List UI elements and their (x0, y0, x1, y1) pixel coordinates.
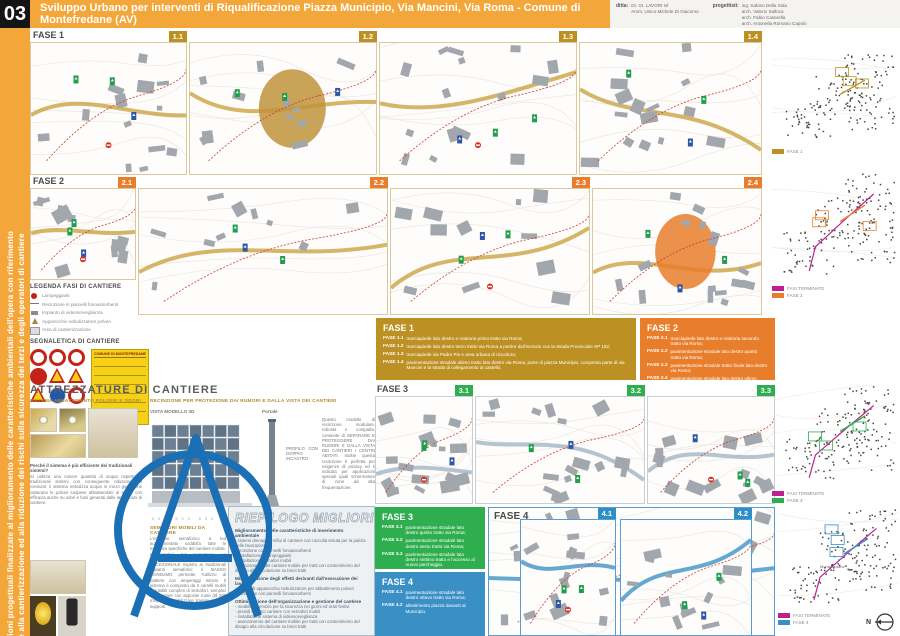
fase3-description-box: FASE 3 FASE 3.1 pavimentazione stradale … (375, 507, 485, 569)
fase4-item: FASE 4.2 allestimento piazza davanti al … (382, 603, 478, 614)
legend-item-icon (30, 310, 39, 316)
fase2-item: FASE 2.4 pavimentazione stradale lato de… (647, 376, 768, 380)
fase3-item: FASE 3.1 pavimentazione stradale lato de… (382, 525, 478, 536)
fase1-item-text: pavimentazione stradale ultimo tratto la… (407, 360, 629, 371)
fase2-item-code: FASE 2.4 (647, 376, 668, 380)
overview-map-fase1-legend: FASE 1 (772, 149, 803, 154)
overview-map-fase1 (772, 52, 896, 146)
fase3-item: FASE 3.2 pavimentazione stradale lato de… (382, 538, 478, 549)
legend-swatch (772, 498, 784, 503)
riepilogo-item: avanzamento del cantiere mobile per trat… (235, 619, 368, 629)
map-panel-3-2: 3.2 (475, 396, 645, 504)
legend-row: FASE 3 (772, 498, 824, 503)
traffic-light-red (70, 601, 74, 605)
legend-swatch (772, 149, 784, 154)
semafori-text: L'impianto semaforico a led autoalimenta… (150, 536, 226, 634)
place-label: Montefredane (820, 564, 845, 569)
legend-row: FASE 4 (778, 620, 830, 625)
legend-item-label: Area di cantierizzazione (42, 327, 91, 332)
profilo-annotation: PROFILO CON DOPPIO INCASTRO (286, 446, 318, 462)
progettisti-block: progettisti: ing. Sabino Della Salaarch.… (713, 3, 807, 25)
fase3-item-text: pavimentazione stradale lato destro quin… (406, 525, 478, 536)
fase2-item-code: FASE 2.1 (647, 336, 668, 347)
recinzione-subtitle: RECINZIONE PER PROTEZIONE DAI RUMORI E D… (150, 399, 375, 404)
legend-item-icon (30, 318, 39, 324)
panel-badge-1-1: 1.1 (169, 31, 187, 42)
panel-badge-1-3: 1.3 (559, 31, 577, 42)
legend-swatch (772, 491, 784, 496)
map-panel-3-1: 3.1 (375, 396, 473, 504)
fase1-item: FASE 1.4 pavimentazione stradale ultimo … (383, 360, 629, 371)
sidebar-line-2: anche alla cantierizzazione ed alla ridu… (16, 58, 27, 636)
progettista-line: arch. Fabio Casarella (742, 15, 807, 20)
fase3-item-code: FASE 3.2 (382, 538, 403, 549)
legend-item-label: Impianto di videosorveglianza (42, 310, 103, 315)
page-title: Sviluppo Urbano per interventi di Riqual… (30, 0, 610, 28)
legend-row: FASI TERMINATE (772, 491, 824, 496)
fase1-item-text: marciapiede via Padre Pio e area urbana … (407, 352, 517, 357)
fase1-item-code: FASE 1.3 (383, 352, 404, 357)
riepilogo-group-heading: Minimizzazione degli effetti derivanti d… (235, 576, 368, 586)
fase3-item-code: FASE 3.3 (382, 552, 403, 568)
legend-item-icon (30, 293, 39, 299)
overview-map-fase2 (772, 172, 896, 282)
legend-item: Impianto di videosorveglianza (30, 310, 172, 316)
legend-item: Apparecchio nebulizzatore polveri (30, 318, 172, 324)
riepilogo-title: RIEPILOGO MIGLIORIE PROPOSTE (235, 511, 368, 525)
ditta-line: Amm. Unico Michele Di Giacomo (631, 9, 698, 14)
ditta-label: ditta: (616, 3, 628, 25)
legend-item: Area di cantierizzazione (30, 327, 172, 333)
fase2-item-text: marciapiede lato destro e rotatoria seco… (671, 336, 768, 347)
panel-badge-1-4: 1.4 (744, 31, 762, 42)
panel-badge-3-2: 3.2 (627, 385, 645, 396)
polveri-text: Si utilizza una minore quantità di acqua… (30, 474, 142, 556)
vista-modello-label: VISTA MODELLO 3D (150, 409, 194, 414)
fase3-item-code: FASE 3.1 (382, 525, 403, 536)
legend-row: FASI TERMINATE (778, 613, 830, 618)
progettisti-lines: ing. Sabino Della Salaarch. Valerio Sall… (742, 3, 807, 25)
legend-item-label: Lampeggianti (42, 293, 70, 298)
ditta-block: ditta: DI. GI. LAVORI srlAmm. Unico Mich… (616, 3, 699, 25)
credits-block: ditta: DI. GI. LAVORI srlAmm. Unico Mich… (610, 0, 900, 28)
fase1-row-label: FASE 1 (33, 30, 64, 40)
fase2-item-text: pavimentazione stradale lato destro ulti… (671, 376, 768, 380)
legend-swatch (778, 620, 790, 625)
fase2-row-label: FASE 2 (33, 176, 64, 186)
portale-label: Portale (262, 409, 278, 414)
overview-map-fase2-legend: FASI TERMINATE FASE 2 (772, 286, 824, 298)
map-panel-2-3: 2.3 (390, 188, 590, 315)
poster-board: 03 Sviluppo Urbano per interventi di Riq… (0, 0, 900, 636)
overview-map-fase3 (772, 385, 896, 488)
fase1-item-code: FASE 1.4 (383, 360, 404, 371)
map-panel-2-1: 2.1 (30, 188, 136, 280)
fase3-row-label: FASE 3 (377, 384, 408, 394)
fase2-item-text: pavimentazione stradale lato destro quar… (671, 349, 768, 360)
fase2-description-box: FASE 2 FASE 2.1 marciapiede lato destro … (640, 318, 775, 380)
legend-swatch (778, 613, 790, 618)
panel-badge-2-3: 2.3 (572, 177, 590, 188)
site-equipment-photo (30, 560, 86, 594)
sidebar-vertical-text: Soluzioni progettuali finalizzate al mig… (5, 58, 27, 636)
legend-item: Lampeggianti (30, 293, 172, 299)
legend-label: FASE 3 (787, 498, 803, 503)
map-panel-1-3: 1.3 (379, 42, 577, 175)
overview-map-fase4: Montefredane (778, 508, 898, 610)
semafori-subtitle: SEMAFORI MOBILI DA CANTIERE (150, 526, 226, 536)
fase2-item: FASE 2.2 pavimentazione stradale lato de… (647, 349, 768, 360)
fase2-box-title: FASE 2 (647, 323, 768, 333)
no-entry-sign-icon (30, 349, 47, 366)
sheet-number: 03 (0, 0, 30, 28)
north-arrow-icon (873, 612, 895, 632)
map-panel-3-3: 3.3 (647, 396, 775, 504)
map-panel-2-4: 2.4 (592, 188, 762, 315)
legend-title: LEGENDA FASI DI CANTIERE (30, 284, 172, 290)
riepilogo-item: avanzamento del cantiere mobile per trat… (235, 563, 368, 573)
fase4-item-code: FASE 4.1 (382, 590, 403, 601)
fase1-description-box: FASE 1 FASE 1.1 marciapiede lato destro … (376, 318, 636, 380)
progettisti-label: progettisti: (713, 3, 739, 25)
map-panel-2-2: 2.2 (138, 188, 388, 315)
map-panel-1-1: 1.1 (30, 42, 187, 175)
legend-label: FASI TERMINATE (787, 491, 824, 496)
segnaletica-title: SEGNALETICA DI CANTIERE (30, 339, 172, 345)
fase1-item: FASE 1.1 marciapiede lato destro e rotat… (383, 336, 629, 341)
generic-warning-sign-icon (68, 368, 84, 383)
fase4-item-code: FASE 4.2 (382, 603, 403, 614)
legend-items: Lampeggianti Recinzione in pannelli fono… (30, 293, 172, 333)
legend-label: FASE 4 (793, 620, 809, 625)
left-sidebar: Soluzioni progettuali finalizzate al mig… (0, 28, 30, 636)
fase1-item: FASE 1.2 marciapiede lato destro terzo t… (383, 344, 629, 349)
fase3-item-text: pavimentazione stradale lato destro sest… (406, 538, 478, 549)
attrezzature-title: ATTREZZATURE DI CANTIERE (30, 384, 219, 396)
legend-item-label: Recinzione in pannelli fonoassorbenti (42, 302, 118, 307)
map-panel-4-1: 4.1 (520, 519, 616, 636)
fase2-item-text: pavimentazione stradale tratto finale la… (671, 363, 768, 374)
fase2-item-code: FASE 2.2 (647, 349, 668, 360)
legend-swatch (772, 286, 784, 291)
panel-badge-2-2: 2.2 (370, 177, 388, 188)
fase1-item: FASE 1.3 marciapiede via Padre Pio e are… (383, 352, 629, 357)
panel-badge-4-1: 4.1 (598, 508, 616, 519)
polveri-question: Perché il sistema è più efficiente dei t… (30, 463, 142, 473)
overview-map-fase4-legend: FASI TERMINATE FASE 4 (778, 613, 830, 625)
fog-cannon-photo-4 (88, 408, 138, 458)
legend-label: FASI TERMINATE (793, 613, 830, 618)
panel-badge-3-1: 3.1 (455, 385, 473, 396)
no-parking-sign-icon (68, 349, 85, 366)
traffic-light-green (70, 615, 74, 619)
legend-row: FASE 1 (772, 149, 803, 154)
fase2-item: FASE 2.1 marciapiede lato destro e rotat… (647, 336, 768, 347)
sidebar-line-1: Soluzioni progettuali finalizzate al mig… (5, 58, 16, 636)
overview-map-fase3-legend: FASI TERMINATE FASE 3 (772, 491, 824, 503)
map-panel-1-2: 1.2 (189, 42, 377, 175)
legend-swatch (772, 293, 784, 298)
panel-badge-4-2: 4.2 (734, 508, 752, 519)
fog-cannon-photo-3 (30, 434, 86, 458)
fase2-item: FASE 2.3 pavimentazione stradale tratto … (647, 363, 768, 374)
riepilogo-group-heading: Miglioramento delle caratteristiche di i… (235, 528, 368, 538)
fase4-item: FASE 4.1 pavimentazione stradale lato de… (382, 590, 478, 601)
progettista-line: arch. Valerio Salloca (742, 9, 807, 14)
fase3-item-text: pavimentazione stradale lato destro sett… (406, 552, 478, 568)
barrier-3d-render (148, 417, 252, 515)
fase4-description-box: FASE 4 FASE 4.1 pavimentazione stradale … (375, 572, 485, 636)
riepilogo-item: recinzione con pannelli fonoassorbenti (235, 591, 368, 596)
ditta-lines: DI. GI. LAVORI srlAmm. Unico Michele Di … (631, 3, 698, 25)
fase1-item-text: marciapiede lato destro e rotatoria prim… (407, 336, 523, 341)
legend-row: FASE 2 (772, 293, 824, 298)
legend-item-label: Apparecchio nebulizzatore polveri (42, 319, 111, 324)
map-panel-1-4: 1.4 (579, 42, 762, 175)
board-line (94, 358, 146, 367)
ditta-line: DI. GI. LAVORI srl (631, 3, 698, 8)
fog-cannon-photo-2 (59, 408, 86, 432)
fase4-item-text: pavimentazione stradale lato destro otta… (406, 590, 478, 601)
north-arrow: N (866, 612, 895, 632)
fase1-item-text: marciapiede lato destro terzo tratto via… (407, 344, 611, 349)
board-line (94, 367, 146, 376)
north-label: N (866, 619, 871, 626)
legend-item: Recinzione in pannelli fonoassorbenti (30, 301, 172, 307)
speed-limit-sign-icon (49, 349, 66, 366)
roadworks-warning-sign-icon (49, 368, 65, 383)
panel-badge-2-4: 2.4 (744, 177, 762, 188)
map-panel-4-2: 4.2 (620, 519, 752, 636)
legend-label: FASE 2 (787, 293, 803, 298)
progettista-line: ing. Sabino Della Sala (742, 3, 807, 8)
riepilogo-item: sistemi drenaggio reflui di cantiere con… (235, 538, 368, 548)
fog-cannon-photo (30, 408, 57, 432)
barrier-dimensions: 500 500 500 (152, 517, 217, 521)
legend-row: FASI TERMINATE (772, 286, 824, 291)
legend-label: FASI TERMINATE (787, 286, 824, 291)
fase1-item-code: FASE 1.1 (383, 336, 404, 341)
fase1-item-code: FASE 1.2 (383, 344, 404, 349)
fase4-box-title: FASE 4 (382, 577, 478, 587)
legend-item-icon (30, 301, 39, 307)
panel-badge-1-2: 1.2 (359, 31, 377, 42)
fase3-item: FASE 3.3 pavimentazione stradale lato de… (382, 552, 478, 568)
fase3-box-title: FASE 3 (382, 512, 478, 522)
mobile-traffic-light-photo (58, 596, 86, 636)
flashing-lamp-photo (30, 596, 56, 636)
barrier-post-render (260, 417, 284, 515)
panel-badge-2-1: 2.1 (118, 177, 136, 188)
riepilogo-groups: Miglioramento delle caratteristiche di i… (235, 528, 368, 629)
no-transit-sign-icon (30, 368, 47, 385)
legend-item-icon (30, 327, 39, 333)
fase2-item-code: FASE 2.3 (647, 363, 668, 374)
legend-label: FASE 1 (787, 149, 803, 154)
polveri-subtitle: SISTEMA ABBATTIMENTO POLVERI E ODORI (30, 399, 145, 404)
progettista-line: arch. Antonella Romano Capolo (742, 21, 807, 26)
traffic-light-yellow (70, 608, 74, 612)
fase1-box-title: FASE 1 (383, 323, 629, 333)
riepilogo-panel: RIEPILOGO MIGLIORIE PROPOSTE Miglioramen… (228, 506, 375, 636)
fase4-item-text: allestimento piazza davanti al Municipio… (406, 603, 478, 614)
